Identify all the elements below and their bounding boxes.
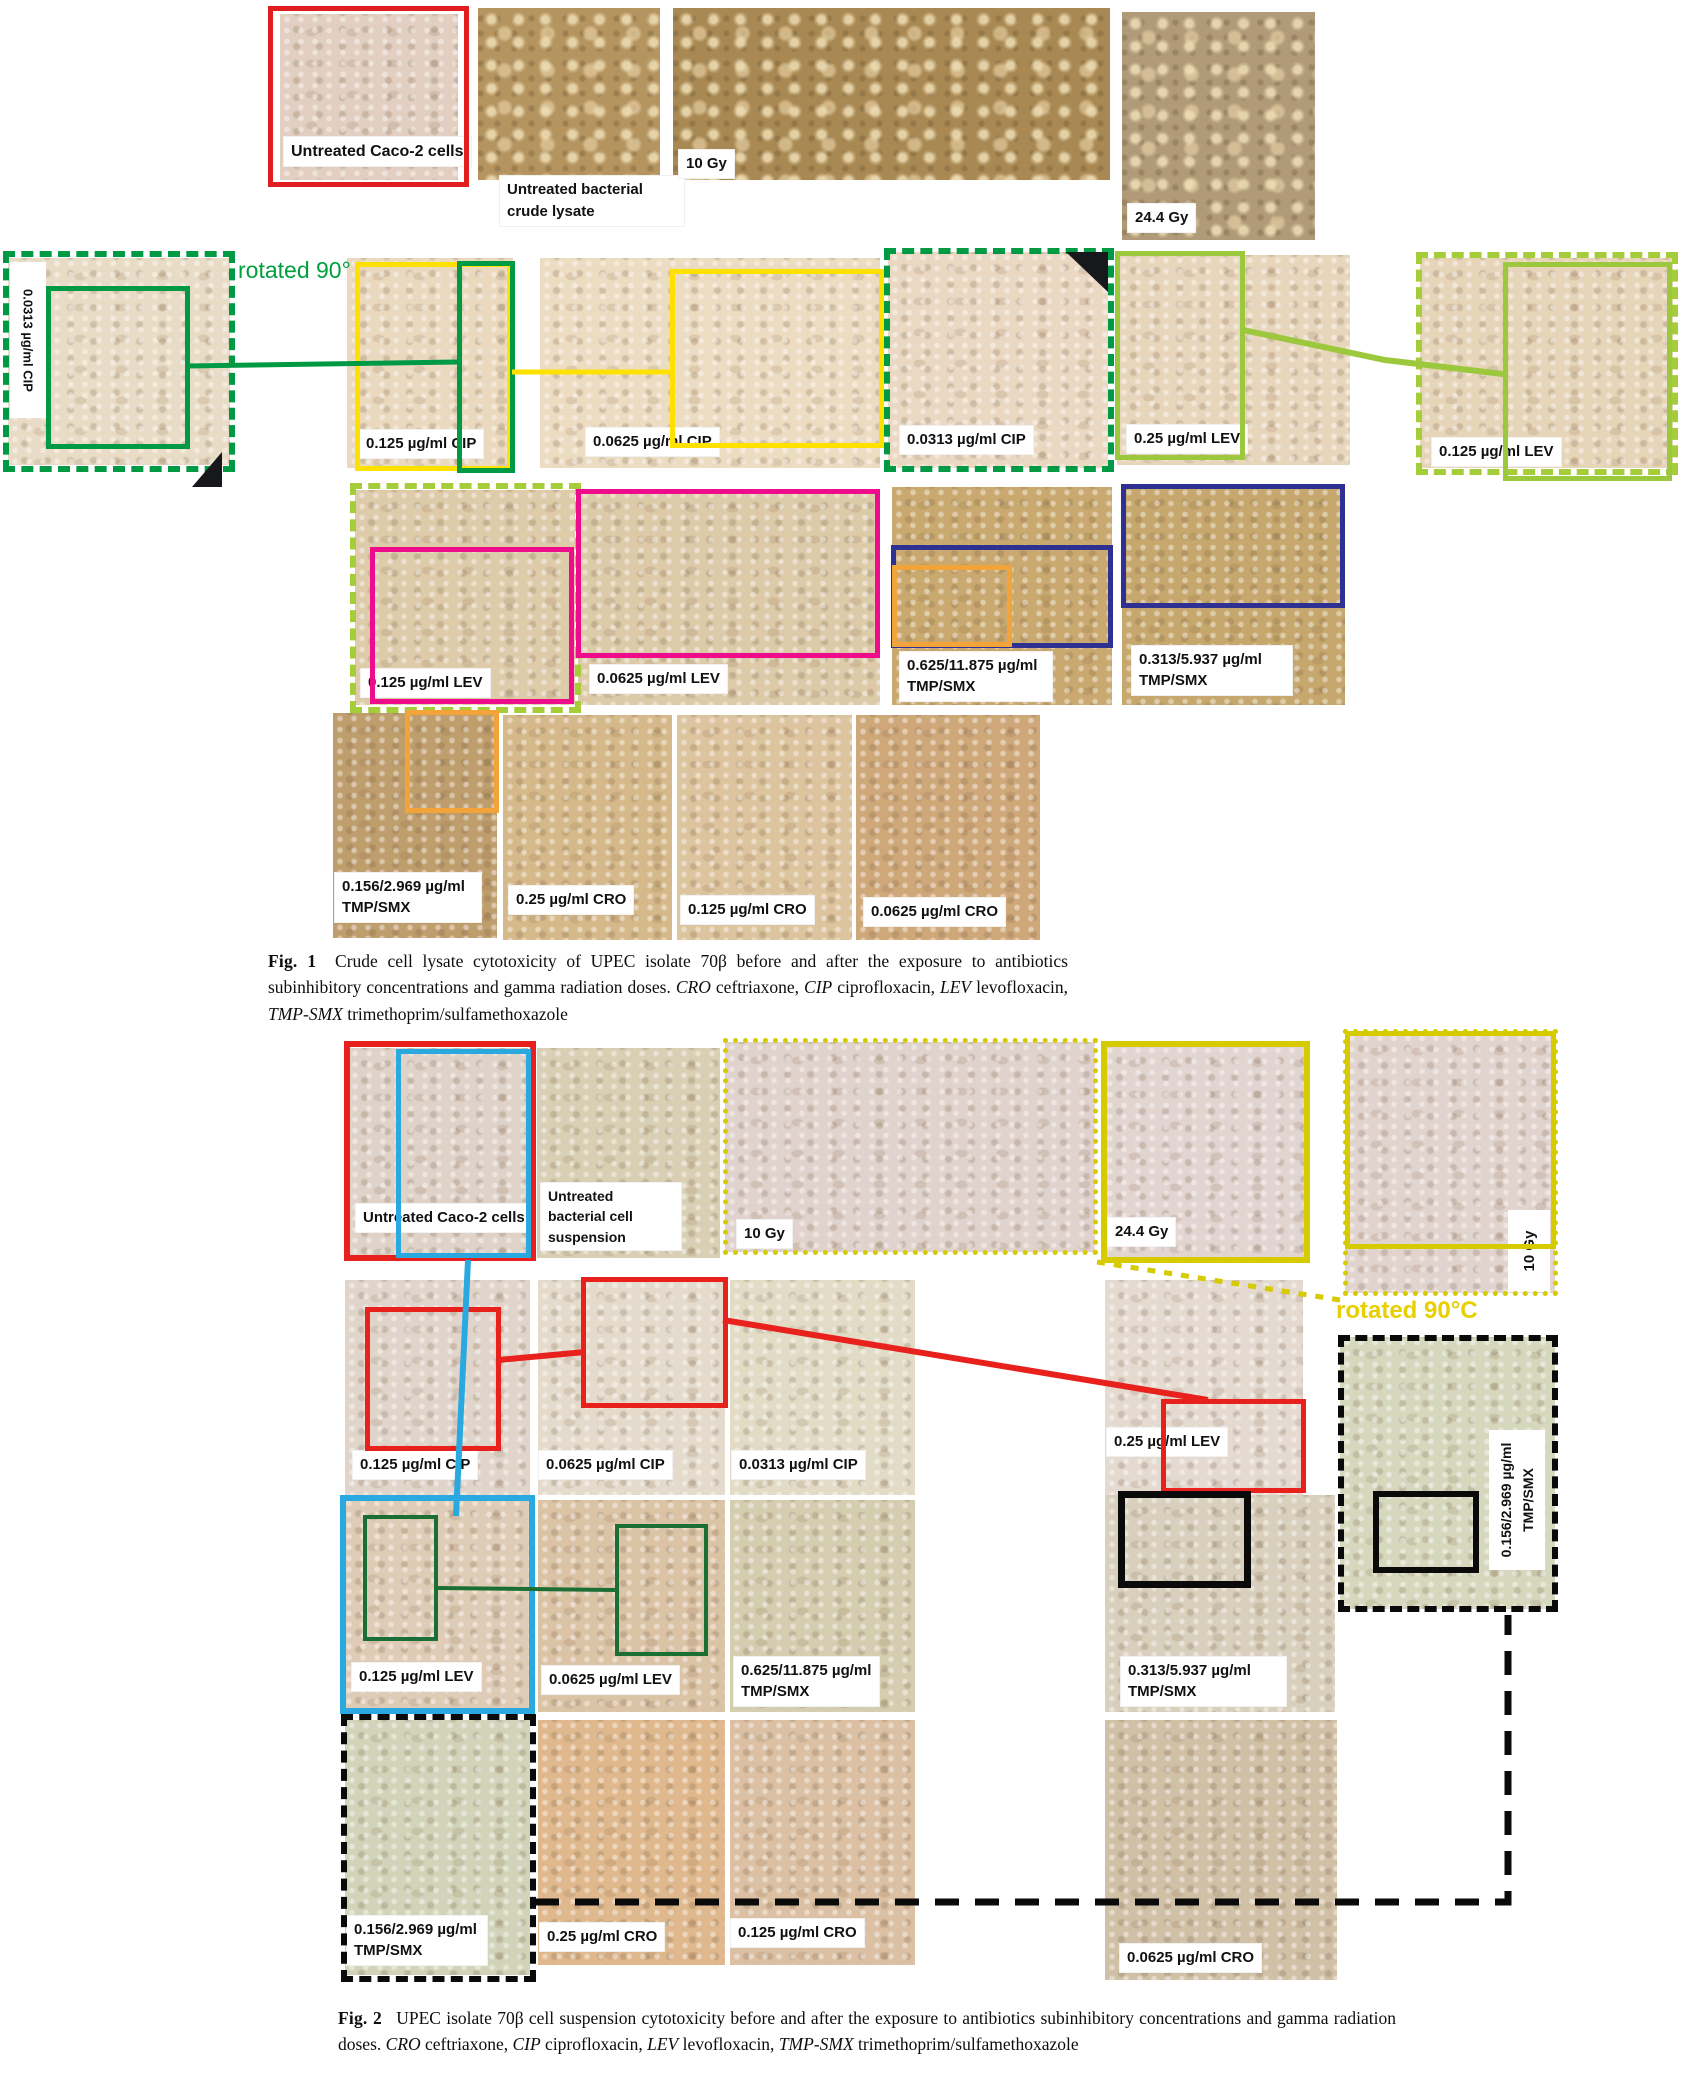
tile-label: 0.125 µg/ml CIP <box>359 430 483 458</box>
figure-page: 0.0313 µg/ml CIP Untreated Caco-2 cells … <box>0 0 1699 2081</box>
tile-label: 0.313/5.937 µg/ml TMP/SMX <box>1121 1657 1286 1707</box>
micrograph-fig1-tmp156: 0.156/2.969 µg/ml TMP/SMX <box>333 713 497 938</box>
micrograph-fig2-tmp156: 0.156/2.969 µg/ml TMP/SMX <box>345 1720 530 1975</box>
tile-label: 0.156/2.969 µg/ml TMP/SMX <box>335 873 481 923</box>
micrograph-fig1-cro25: 0.25 µg/ml CRO <box>503 715 672 940</box>
caption-abbr: CRO <box>676 977 711 997</box>
micrograph-fig2-10gy: 10 Gy <box>725 1042 1095 1252</box>
tile-label: 0.0625 µg/ml CIP <box>586 428 719 456</box>
micrograph-fig2-cro0625: 0.0625 µg/ml CRO <box>1105 1720 1337 1980</box>
micrograph-fig1-lev25: 0.25 µg/ml LEV <box>1117 255 1350 465</box>
figure2-caption: Fig. 2 UPEC isolate 70β cell suspension … <box>338 2005 1396 2058</box>
micrograph-fig1-10gy: 10 Gy <box>673 8 1110 180</box>
caption-abbr: LEV <box>647 2034 678 2054</box>
tile-label: 0.625/11.875 µg/ml TMP/SMX <box>900 652 1052 702</box>
micrograph-fig1-cip0625: 0.0625 µg/ml CIP <box>540 258 880 468</box>
tile-label: 24.4 Gy <box>1128 204 1195 232</box>
micrograph-fig2-cip125: 0.125 µg/ml CIP <box>345 1280 530 1495</box>
tile-label: 0.0625 µg/ml LEV <box>590 665 727 693</box>
tile-label: 24.4 Gy <box>1108 1218 1175 1246</box>
micrograph-fig2-untreated-caco2: Untreated Caco-2 cells <box>348 1048 528 1258</box>
rotated-note-fig1: rotated 90° <box>238 257 351 284</box>
tile-label: 0.0625 µg/ml CRO <box>864 898 1005 926</box>
micrograph-fig2-lev125: 0.125 µg/ml LEV <box>342 1498 532 1711</box>
micrograph-fig1-rotated-cip0313: 0.0313 µg/ml CIP <box>8 258 230 465</box>
tile-label: 0.25 µg/ml CRO <box>509 886 633 914</box>
tile-label-vertical: 10 Gy <box>1508 1210 1550 1292</box>
micrograph-fig1-lev125: 0.125 µg/ml LEV <box>1420 258 1673 468</box>
tile-label: 0.0625 µg/ml LEV <box>542 1666 679 1694</box>
micrograph-fig2-lev0625: 0.0625 µg/ml LEV <box>538 1500 725 1712</box>
tile-label: 0.125 µg/ml LEV <box>361 669 490 697</box>
micrograph-fig1-cro125: 0.125 µg/ml CRO <box>677 715 852 940</box>
micrograph-fig2-tmp313: 0.313/5.937 µg/ml TMP/SMX <box>1105 1495 1335 1712</box>
caption-text: ceftriaxone, <box>421 2034 513 2054</box>
micrograph-fig2-tmp156-side: 0.156/2.969 µg/ml TMP/SMX <box>1340 1337 1555 1609</box>
tile-label: 10 Gy <box>679 150 734 178</box>
tile-label: 0.156/2.969 µg/ml TMP/SMX <box>347 1916 487 1966</box>
tile-label-vertical: 0.0313 µg/ml CIP <box>10 262 46 418</box>
tile-label: 0.125 µg/ml CRO <box>731 1919 864 1947</box>
micrograph-fig1-cro0625: 0.0625 µg/ml CRO <box>856 715 1040 940</box>
micrograph-fig2-cro125: 0.125 µg/ml CRO <box>730 1720 915 1965</box>
caption-text: ceftriaxone, <box>711 977 804 997</box>
tile-label: Untreated Caco-2 cells <box>356 1204 532 1232</box>
caption-text: trimethoprim/sulfamethoxazole <box>343 1004 568 1024</box>
tile-label: 0.313/5.937 µg/ml TMP/SMX <box>1132 646 1292 696</box>
tile-label: 0.0313 µg/ml CIP <box>900 426 1033 454</box>
tile-label: 0.125 µg/ml CIP <box>353 1451 477 1479</box>
micrograph-fig1-lev125-row3: 0.125 µg/ml LEV <box>355 490 575 705</box>
tile-label: 0.0313 µg/ml CIP <box>732 1451 865 1479</box>
micrograph-fig1-cip125: 0.125 µg/ml CIP <box>347 258 513 468</box>
tile-label: 0.125 µg/ml LEV <box>352 1663 481 1691</box>
caption-abbr: CIP <box>512 2034 540 2054</box>
micrograph-fig2-untreated-suspension: Untreated bacterial cell suspension <box>537 1048 720 1258</box>
tile-label-vertical: 0.156/2.969 µg/ml TMP/SMX <box>1489 1430 1545 1570</box>
caption-abbr: CRO <box>386 2034 421 2054</box>
micrograph-fig2-cip0625: 0.0625 µg/ml CIP <box>538 1280 725 1495</box>
figure1-caption: Fig. 1 Crude cell lysate cytotoxicity of… <box>268 948 1068 1027</box>
micrograph-fig1-lev0625: 0.0625 µg/ml LEV <box>578 490 880 705</box>
tile-label: 0.0625 µg/ml CRO <box>1120 1944 1261 1972</box>
caption-text: trimethoprim/sulfamethoxazole <box>854 2034 1079 2054</box>
caption-text: levofloxacin, <box>678 2034 779 2054</box>
caption-text: ciprofloxacin, <box>832 977 940 997</box>
figure1-caption-tag: Fig. 1 <box>268 951 316 971</box>
micrograph-fig2-rotated-10gy: 10 Gy <box>1345 1033 1555 1293</box>
micrograph-fig1-tmp313: 0.313/5.937 µg/ml TMP/SMX <box>1122 487 1345 705</box>
tile-label: Untreated bacterial crude lysate <box>500 176 684 226</box>
micrograph-fig2-cro25: 0.25 µg/ml CRO <box>538 1720 725 1965</box>
figure2-caption-tag: Fig. 2 <box>338 2008 382 2028</box>
tile-label: 10 Gy <box>737 1220 792 1248</box>
caption-abbr: CIP <box>804 977 832 997</box>
caption-abbr: TMP-SMX <box>268 1004 343 1024</box>
tile-label: 0.0625 µg/ml CIP <box>539 1451 672 1479</box>
micrograph-fig1-cip0313: 0.0313 µg/ml CIP <box>888 252 1108 468</box>
tile-label: 0.125 µg/ml LEV <box>1432 438 1561 466</box>
tile-label: 0.25 µg/ml LEV <box>1127 425 1247 453</box>
micrograph-fig1-untreated-caco2: Untreated Caco-2 cells <box>280 14 458 180</box>
micrograph-fig2-244gy: 24.4 Gy <box>1103 1045 1307 1260</box>
micrograph-fig1-untreated-lysate: Untreated bacterial crude lysate <box>478 8 660 180</box>
tile-label: Untreated Caco-2 cells <box>284 137 471 166</box>
tile-label: 0.25 µg/ml LEV <box>1107 1428 1227 1456</box>
caption-abbr: TMP-SMX <box>779 2034 854 2054</box>
tile-label: 0.625/11.875 µg/ml TMP/SMX <box>734 1657 879 1707</box>
micrograph-fig1-tmp625: 0.625/11.875 µg/ml TMP/SMX <box>892 487 1112 705</box>
micrograph-fig2-cip0313: 0.0313 µg/ml CIP <box>730 1280 915 1495</box>
caption-text: levofloxacin, <box>971 977 1068 997</box>
caption-text: ciprofloxacin, <box>541 2034 647 2054</box>
tile-label: 0.25 µg/ml CRO <box>540 1923 664 1951</box>
micrograph-fig2-lev25: 0.25 µg/ml LEV <box>1105 1280 1303 1500</box>
micrograph-fig1-244gy: 24.4 Gy <box>1122 12 1315 240</box>
micrograph-fig2-tmp625: 0.625/11.875 µg/ml TMP/SMX <box>730 1500 915 1712</box>
caption-abbr: LEV <box>940 977 971 997</box>
tile-label: Untreated bacterial cell suspension <box>541 1183 681 1250</box>
rotated-note-fig2: rotated 90°C <box>1336 1297 1478 1325</box>
tile-label: 0.125 µg/ml CRO <box>681 896 814 924</box>
